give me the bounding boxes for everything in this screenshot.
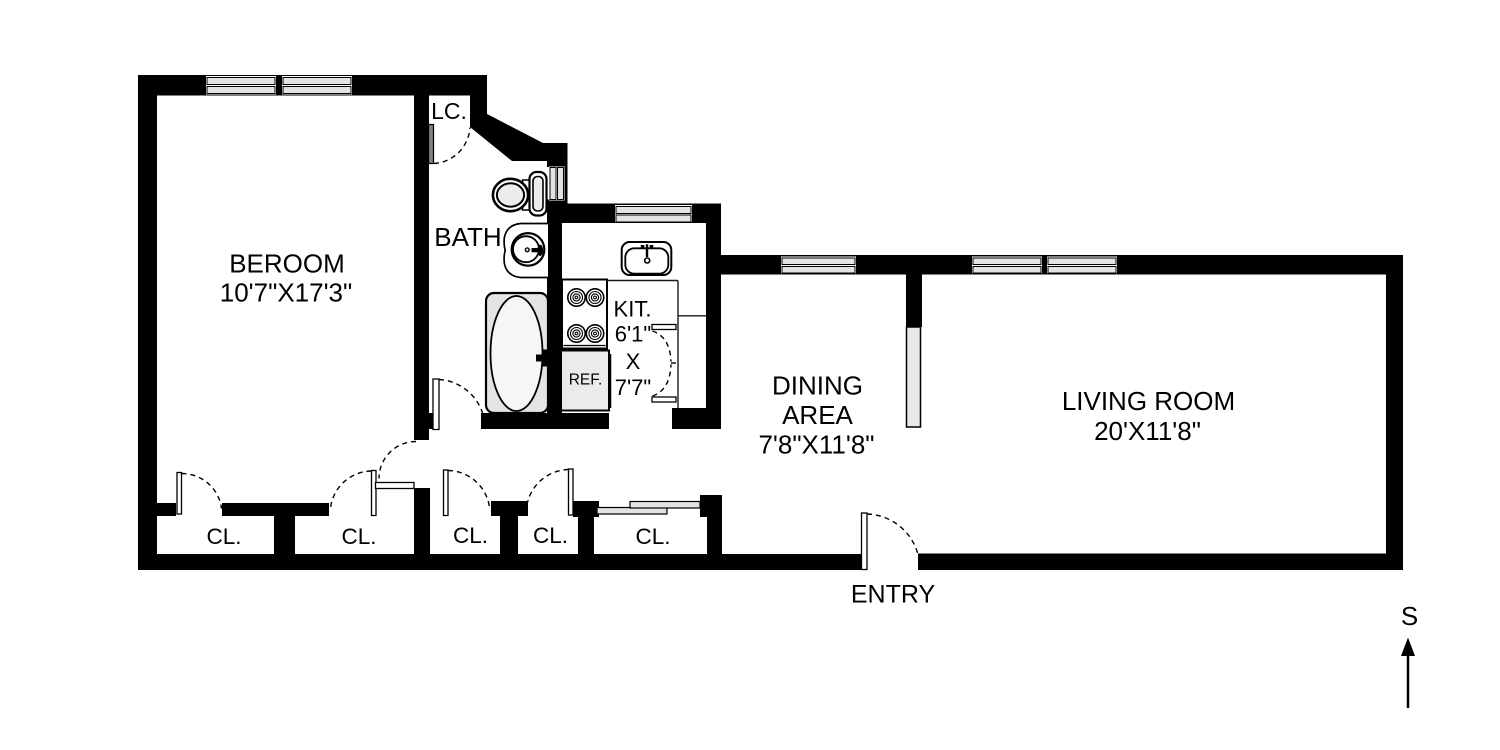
svg-text:20'X11'8": 20'X11'8"	[1094, 416, 1201, 446]
svg-text:BATH: BATH	[434, 222, 501, 252]
svg-text:LIVING ROOM: LIVING ROOM	[1062, 386, 1235, 416]
svg-text:ENTRY: ENTRY	[851, 581, 936, 609]
svg-text:7'7": 7'7"	[615, 375, 651, 400]
svg-text:X: X	[626, 349, 641, 374]
svg-text:6'1": 6'1"	[615, 322, 651, 347]
svg-text:CL.: CL.	[206, 524, 241, 549]
svg-text:CL.: CL.	[635, 524, 670, 549]
svg-text:REF.: REF.	[569, 372, 603, 389]
svg-text:KIT.: KIT.	[614, 297, 652, 322]
svg-text:10'7"X17'3": 10'7"X17'3"	[220, 278, 353, 308]
svg-text:CL.: CL.	[341, 524, 376, 549]
svg-text:AREA: AREA	[782, 400, 853, 430]
svg-text:LC.: LC.	[431, 98, 467, 124]
svg-text:DINING: DINING	[772, 371, 863, 401]
svg-text:BEROOM: BEROOM	[229, 249, 345, 279]
svg-text:CL.: CL.	[453, 523, 488, 548]
svg-text:7'8"X11'8": 7'8"X11'8"	[758, 430, 874, 460]
svg-text:CL.: CL.	[533, 523, 568, 548]
svg-text:S: S	[1401, 601, 1418, 631]
